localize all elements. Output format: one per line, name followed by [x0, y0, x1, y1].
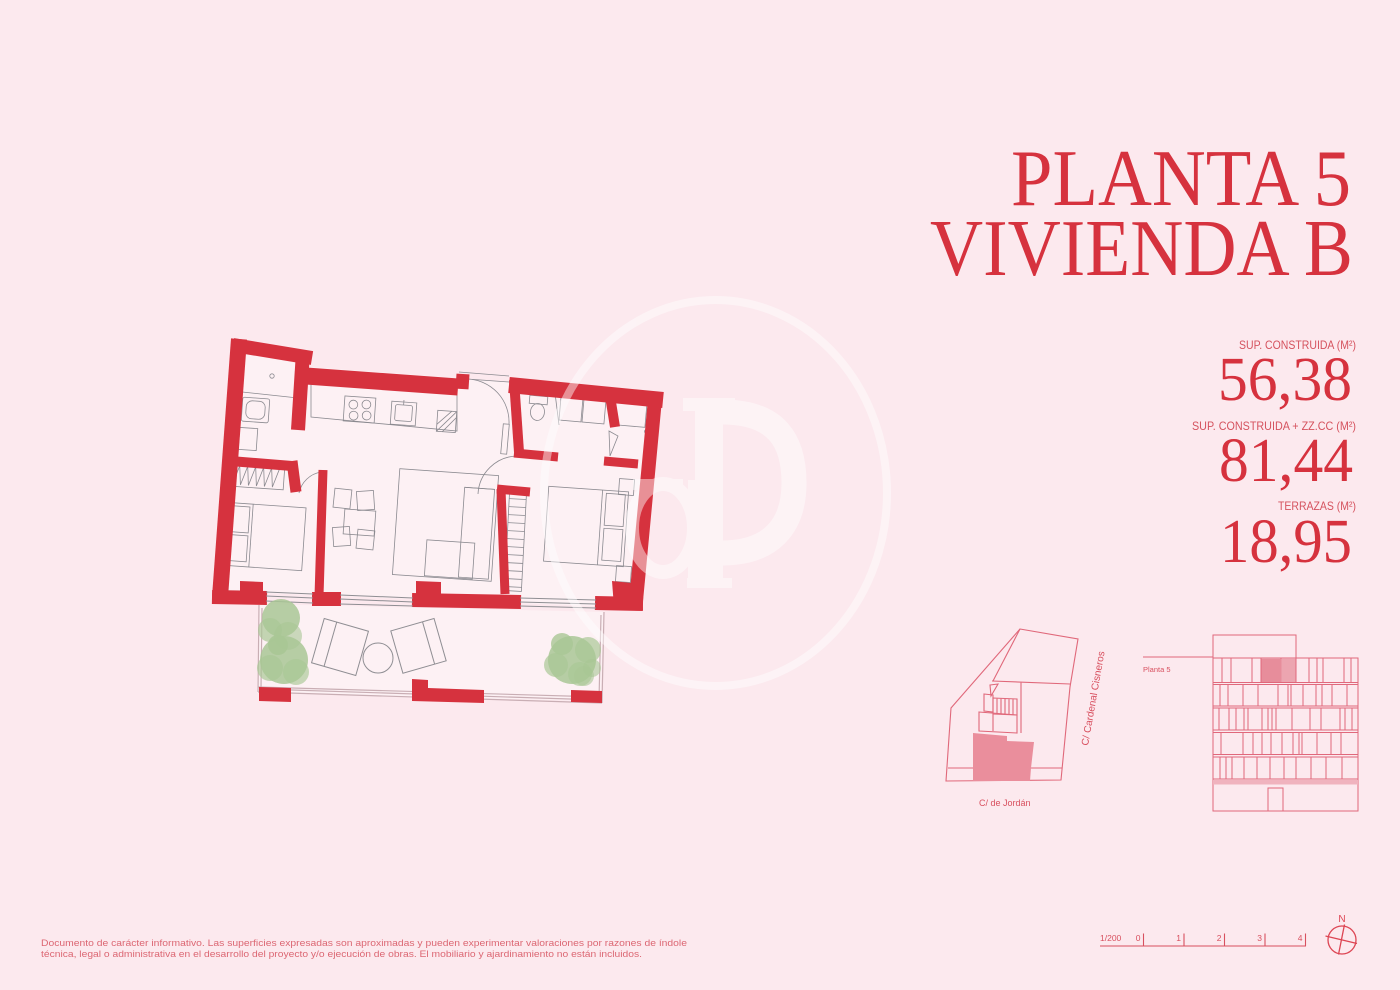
svg-text:3: 3: [1257, 933, 1262, 943]
svg-text:técnica, legal o administrativ: técnica, legal o administrativa en el de…: [41, 948, 642, 959]
svg-text:4: 4: [1298, 933, 1303, 943]
svg-text:C/ de Jordán: C/ de Jordán: [979, 798, 1031, 808]
svg-text:1/200: 1/200: [1100, 933, 1122, 943]
svg-text:1: 1: [1176, 933, 1181, 943]
svg-text:0: 0: [1136, 933, 1141, 943]
svg-text:18,95: 18,95: [1220, 508, 1352, 576]
svg-text:VIVIENDA B: VIVIENDA B: [930, 205, 1353, 293]
svg-text:Planta 5: Planta 5: [1143, 665, 1171, 674]
svg-text:56,38: 56,38: [1218, 346, 1352, 414]
svg-text:Documento de carácter informat: Documento de carácter informativo. Las s…: [41, 937, 687, 948]
svg-text:N: N: [1338, 914, 1345, 925]
svg-text:2: 2: [1217, 933, 1222, 943]
svg-text:81,44: 81,44: [1219, 427, 1353, 495]
